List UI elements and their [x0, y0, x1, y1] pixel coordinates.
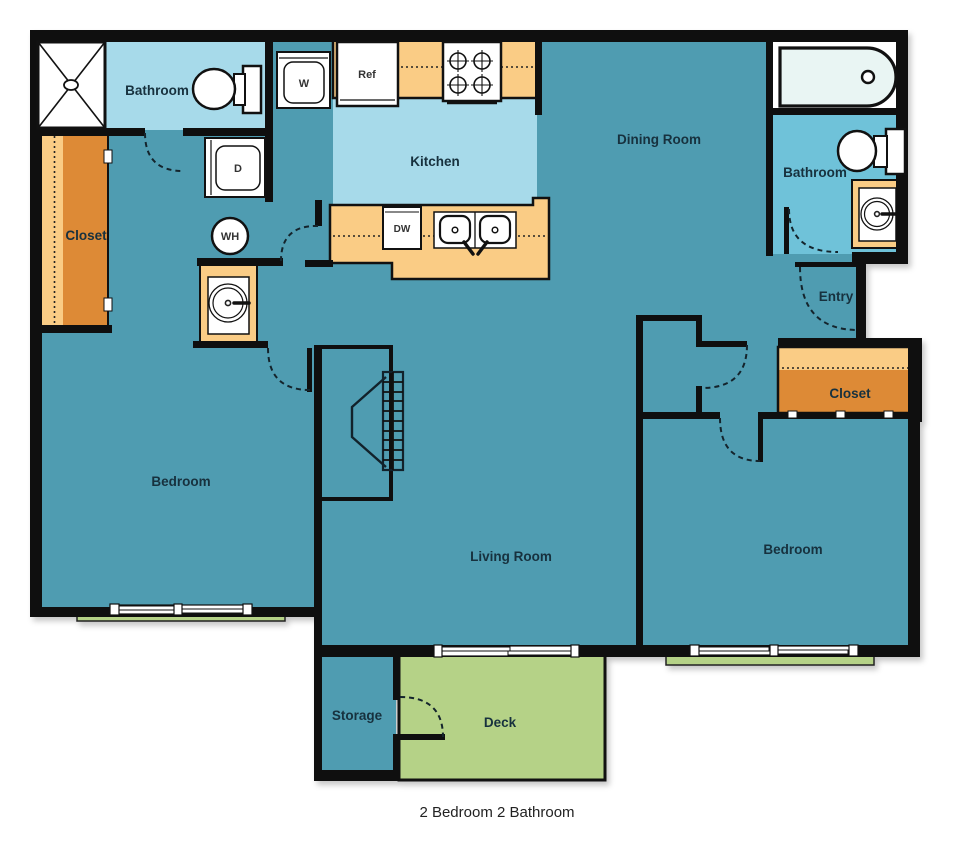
kitchen-sink-icon: [434, 212, 516, 254]
shower-icon: [38, 42, 105, 128]
hall-vanity: [200, 265, 257, 343]
wall-storage-right-a: [393, 650, 400, 700]
label-deck: Deck: [484, 715, 517, 730]
window-jamb: [770, 645, 778, 656]
water-heater-icon: WH: [212, 218, 248, 254]
wall-storage-right-b: [393, 734, 400, 781]
stove-icon: [443, 42, 501, 103]
window-pane: [119, 606, 174, 610]
wall-vestibule-mid: [696, 341, 747, 347]
label-storage: Storage: [332, 708, 383, 723]
bathtub-icon: [780, 48, 896, 106]
dryer-icon: D: [205, 138, 265, 197]
dryer-label: D: [234, 163, 242, 175]
window-ledge-right: [666, 656, 874, 665]
wall-storage-left: [314, 650, 322, 781]
window-jamb: [690, 645, 699, 656]
washer-label: W: [299, 78, 310, 90]
closet-right-shelf: [778, 347, 914, 370]
label-bathroom-left: Bathroom: [125, 83, 189, 98]
window-jamb: [110, 604, 119, 615]
dishwasher-icon: DW: [383, 207, 421, 249]
sink-drain: [452, 227, 458, 233]
floor-plan: W D WH Ref: [30, 30, 922, 781]
closet-left-door-notch: [104, 150, 112, 163]
wall-closet-right-top: [778, 338, 915, 347]
closet-left-door-notch: [104, 298, 112, 311]
label-bedroom-left: Bedroom: [151, 474, 210, 489]
sliding-door-jamb: [434, 645, 442, 657]
window-pane: [699, 647, 769, 651]
sliding-door-panel: [508, 651, 572, 655]
wall-top: [30, 30, 908, 42]
toilet-tank: [886, 129, 905, 174]
wall-laundry-vertical: [265, 30, 273, 202]
door-leaf-deck: [397, 734, 445, 740]
window-pane: [182, 609, 243, 613]
closet-right: [778, 347, 914, 413]
floor-plan-page: W D WH Ref: [0, 0, 958, 844]
window-pane: [778, 650, 848, 654]
wall-bedroom-right-side: [908, 420, 920, 657]
door-leaf-bedroom-right: [758, 417, 763, 462]
wall-storage-bottom: [314, 770, 400, 781]
window-bedroom-right: [690, 645, 858, 656]
sliding-door-deck: [434, 645, 579, 657]
bathtub-drain: [862, 71, 874, 83]
wall-closet-left-bottom: [30, 325, 112, 333]
label-closet-left: Closet: [65, 228, 107, 243]
sink-drain: [492, 227, 498, 233]
wall-closet-right-side: [908, 338, 922, 422]
plan-title: 2 Bedroom 2 Bathroom: [419, 804, 574, 821]
window-bedroom-left: [110, 604, 252, 615]
door-leaf-bedroom-left: [307, 348, 312, 392]
door-leaf-entry: [795, 262, 866, 267]
label-bedroom-right: Bedroom: [763, 542, 822, 557]
washer-icon: W: [277, 52, 330, 108]
stove-body: [443, 42, 501, 101]
label-dining-room: Dining Room: [617, 132, 701, 147]
wall-entry-right: [856, 258, 866, 344]
wall-kitchen-dining-stub: [535, 36, 542, 115]
wall-vestibule-top: [636, 315, 702, 321]
closet-door-notch: [884, 411, 893, 418]
label-bathroom-right: Bathroom: [783, 165, 847, 180]
wall-stair-alcove-bottom: [318, 497, 393, 501]
sliding-door-panel: [442, 647, 510, 651]
wall-kitchen-stub: [315, 200, 322, 226]
closet-door-notch: [788, 411, 797, 418]
wall-kitchen-door-bottom: [305, 260, 333, 267]
label-living-room: Living Room: [470, 549, 552, 564]
wall-bathroom-right-left: [766, 36, 773, 256]
window-jamb: [174, 604, 182, 615]
refrigerator-label: Ref: [358, 69, 376, 81]
water-heater-label: WH: [221, 231, 239, 243]
wall-under-tub: [766, 108, 902, 115]
wall-vanity-bottom: [193, 341, 268, 348]
wall-bedroom-right-left: [636, 315, 643, 657]
window-jamb: [243, 604, 252, 615]
wall-laundry-bottom: [197, 258, 283, 266]
label-kitchen: Kitchen: [410, 154, 460, 169]
toilet-bowl: [193, 69, 235, 109]
bathtub-outline: [780, 48, 896, 106]
window-jamb: [849, 645, 858, 656]
label-closet-right: Closet: [829, 386, 871, 401]
label-entry: Entry: [819, 289, 854, 304]
shower-drain: [64, 80, 78, 90]
refrigerator-icon: Ref: [337, 42, 398, 106]
toilet-left-icon: [193, 66, 261, 113]
floor-plan-canvas: W D WH Ref: [0, 0, 958, 844]
sliding-door-jamb: [571, 645, 579, 657]
closet-door-notch: [836, 411, 845, 418]
dishwasher-label: DW: [394, 224, 411, 235]
wall-bedroom-right-top-a: [636, 412, 720, 419]
bathroom-right-vanity: [852, 180, 903, 248]
wall-stair-alcove-top: [314, 345, 393, 349]
wall-bathroom-left-bottom-b: [183, 128, 265, 136]
